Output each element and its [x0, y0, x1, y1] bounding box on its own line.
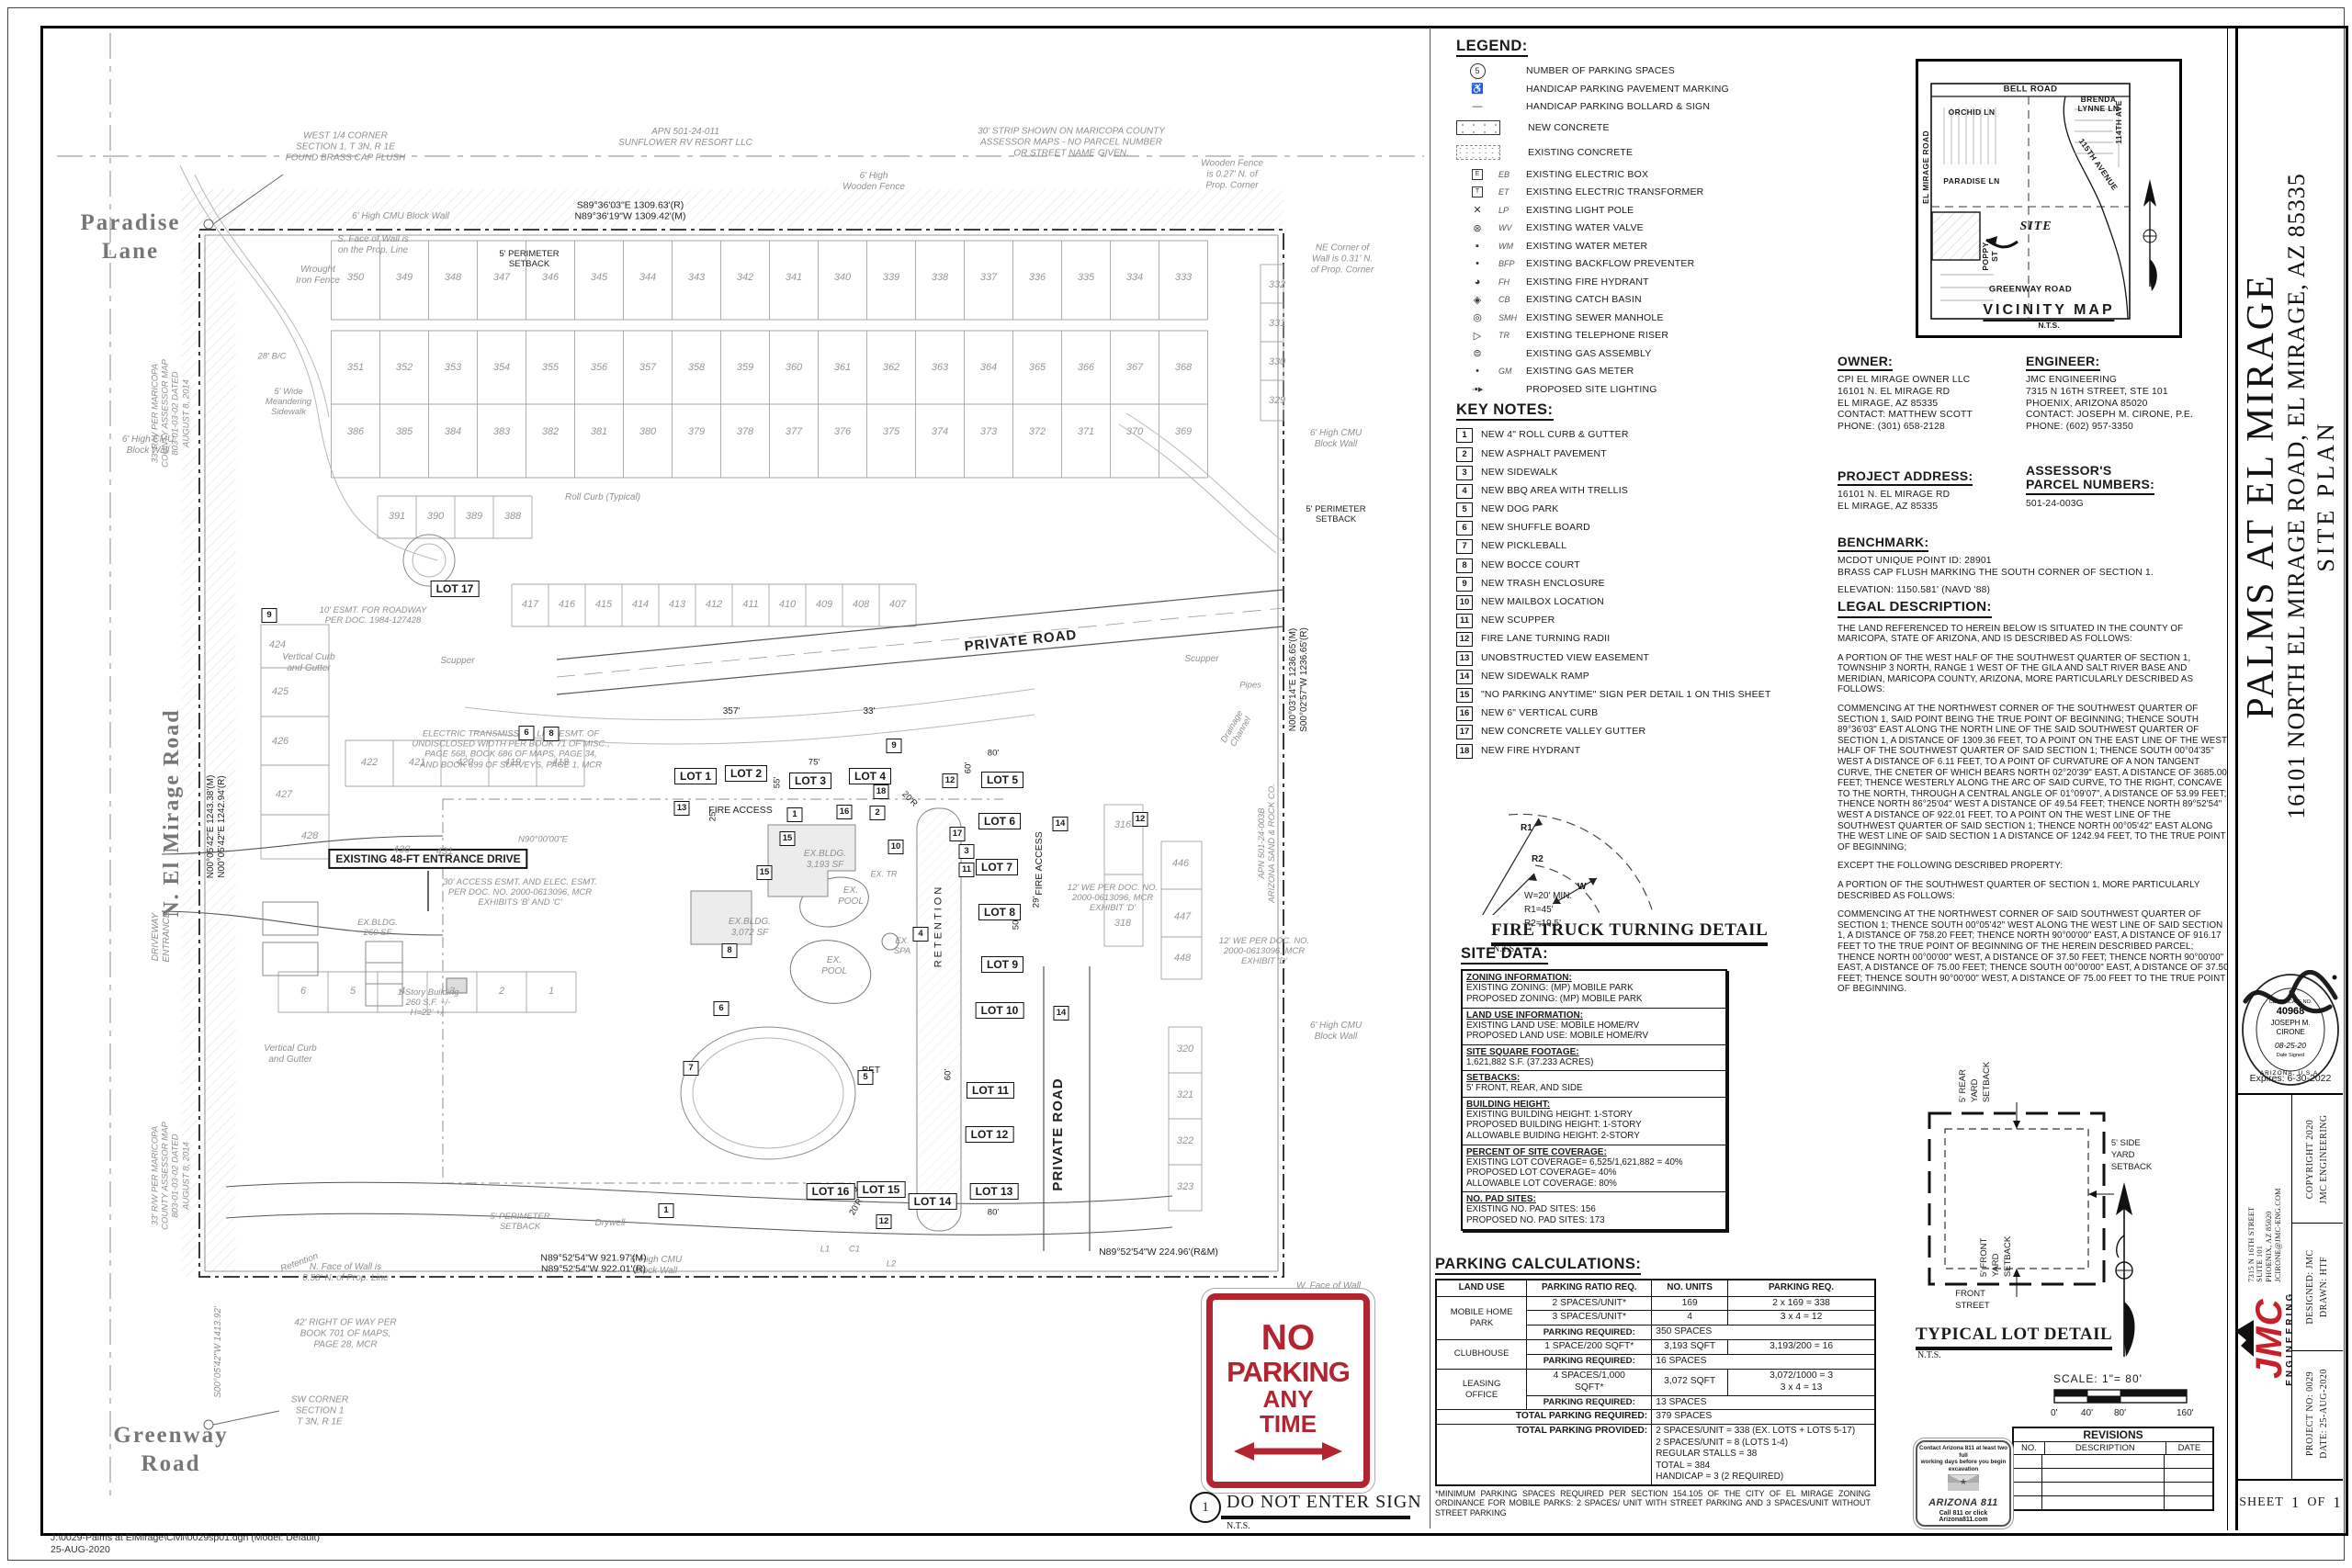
keynote-marker: 9	[887, 739, 902, 753]
legend-item: •BFPEXISTING BACKFLOW PREVENTER	[1456, 254, 1837, 273]
land-use-leasing: LEASING OFFICE	[1436, 1369, 1527, 1410]
site-data-line: PROPOSED BUILDING HEIGHT: 1-STORY	[1466, 1120, 1722, 1131]
plan-annotation: 5' PERIMETER SETBACK	[1306, 504, 1365, 525]
plan-annotation: Roll Curb (Typical)	[565, 492, 640, 503]
plan-annotation: 55'	[772, 777, 782, 788]
table-row	[2014, 1483, 2212, 1496]
lot-number: 346	[542, 272, 559, 283]
sheet-total: 1	[2333, 1494, 2342, 1512]
keynote-marker: 6	[519, 726, 535, 740]
water-valve-icon: ⊛	[1456, 222, 1498, 234]
legend-title: LEGEND:	[1456, 39, 1528, 57]
plan-annotation: 20'R	[899, 789, 920, 809]
gas-meter-icon: •	[1456, 366, 1498, 377]
lot-number: 410	[779, 599, 796, 610]
lot-number: 421	[409, 757, 425, 768]
legend-item: NEW CONCRETE	[1456, 116, 1837, 141]
site-data-section: SETBACKS:5' FRONT, REAR, AND SIDE	[1463, 1070, 1725, 1097]
keynote-text: "NO PARKING ANYTIME" SIGN PER DETAIL 1 O…	[1481, 688, 1771, 700]
lot-box-label: LOT 12	[966, 1126, 1014, 1143]
legend-symbol-label: WV	[1498, 223, 1526, 232]
turning-r2-label: R2	[1532, 852, 1543, 866]
revisions-table: REVISIONS NO. DESCRIPTION DATE	[2012, 1427, 2214, 1511]
drawn-by: DRAWN: HTF	[2317, 1256, 2331, 1316]
lot-number: 447	[1174, 911, 1191, 922]
lot-box-label: LOT 6	[978, 813, 1021, 829]
list-item: PHOENIX, ARIZONA 85020	[2026, 399, 2230, 411]
site-data-line: ALLOWABLE BUIDING HEIGHT: 2-STORY	[1466, 1131, 1722, 1142]
keynote-marker: 13	[674, 801, 690, 816]
lot-number: 425	[272, 686, 288, 697]
col-req: PARKING REQ.	[1728, 1280, 1875, 1296]
keynote-number: 1	[1456, 428, 1473, 443]
vicinity-bell-road: BELL ROAD	[2004, 85, 2058, 95]
keynote-text: NEW SIDEWALK	[1481, 466, 1558, 478]
parking-header-row: LAND USE PARKING RATIO REQ. NO. UNITS PA…	[1436, 1280, 1875, 1296]
owner-title: OWNER:	[1837, 355, 1893, 371]
legend-item: 5NUMBER OF PARKING SPACES	[1456, 62, 1837, 80]
benchmark-lines: MCDOT UNIQUE POINT ID: 28901BRASS CAP FL…	[1837, 556, 2231, 596]
keynote-marker: 18	[874, 784, 889, 799]
site-data-section: SITE SQUARE FOOTAGE:1,621,882 S.F. (37.2…	[1463, 1044, 1725, 1071]
scale-bar-block: SCALE: 1"= 80' 0' 40' 80' 160'	[2053, 1372, 2200, 1421]
plan-annotation: 6' High CMU Block Wall	[1310, 428, 1362, 450]
land-use-mobile: MOBILE HOME PARK	[1436, 1296, 1527, 1340]
typical-lot-title: TYPICAL LOT DETAIL	[1916, 1325, 2112, 1350]
lot-number: 407	[889, 599, 906, 610]
keynote-text: NEW PICKLEBALL	[1481, 539, 1566, 551]
lot-number: 355	[542, 362, 559, 373]
electric-box-icon: E	[1456, 169, 1498, 180]
plan-annotation: 6' High Wooden Fence	[842, 171, 905, 193]
typical-lot-nts: N.T.S.	[1917, 1350, 1941, 1360]
turning-detail-title: FIRE TRUCK TURNING DETAIL	[1491, 920, 1768, 946]
revisions-title: REVISIONS	[2014, 1428, 2212, 1442]
electric-transformer-icon: T	[1472, 186, 1483, 197]
site-data-line: 1,621,882 S.F. (37.233 ACRES)	[1466, 1057, 1722, 1068]
lot-number: 344	[639, 272, 656, 283]
keynote-text: NEW SHUFFLE BOARD	[1481, 521, 1590, 533]
az811-logo: ARIZONA 811	[1917, 1497, 2009, 1508]
keynote-number: 17	[1456, 725, 1473, 739]
stamp-expiration: Expires: 6-30-2022	[2238, 1073, 2343, 1084]
plan-annotation: N00°05'42"E 1243.38'(M) N00°05'42"E 1242…	[206, 775, 228, 879]
lot-box-label: LOT 4	[849, 768, 891, 784]
engineer-lines: JMC ENGINEERING7315 N 16TH STREET, STE 1…	[2026, 375, 2230, 433]
col-units: NO. UNITS	[1652, 1280, 1728, 1296]
az811-line2: working days before you begin excavation	[1917, 1459, 2009, 1472]
keynote-marker: 5	[858, 1070, 874, 1085]
lot-number: 413	[669, 599, 685, 610]
detail-number-bubble: 1	[1190, 1492, 1221, 1523]
plan-annotation: Wooden Fence is 0.27' N. of Prop. Corner	[1201, 158, 1263, 190]
plan-annotation: 357'	[723, 706, 741, 717]
lot-number: 335	[1078, 272, 1094, 283]
plan-annotation: Vertical Curb and Gutter	[282, 652, 334, 674]
backflow-preventer-icon: •	[1456, 258, 1498, 269]
list-item: PHONE: (301) 658-2128	[1837, 422, 2026, 434]
keynote-item: 7NEW PICKLEBALL	[1456, 539, 1837, 554]
total-provided-lines: 2 SPACES/UNIT = 338 (EX. LOTS + LOTS 5-1…	[1652, 1425, 1875, 1485]
keynote-item: 17NEW CONCRETE VALLEY GUTTER	[1456, 725, 1837, 739]
front-setback-label: 5' FRONT YARD SETBACK	[1979, 1236, 2014, 1277]
file-path-footer: J:\0029-Palms at ElMirage\Civil\0029sp01…	[51, 1532, 320, 1556]
lot-box-label: LOT 9	[981, 956, 1023, 973]
keynote-text: UNOBSTRUCTED VIEW EASEMENT	[1481, 651, 1649, 663]
sign-any: ANY	[1263, 1387, 1314, 1412]
rear-setback-label: 5' REAR YARD SETBACK	[1958, 1062, 1993, 1102]
leasing-ratio: 4 SPACES/1,000 SQFT*	[1527, 1369, 1652, 1395]
lot-number: 3	[449, 986, 455, 997]
mobile-req-2: 3 x 4 = 12	[1728, 1311, 1875, 1325]
legal-paragraph: COMMENCING AT THE NORTHWEST CORNER OF TH…	[1837, 704, 2231, 852]
plan-annotation: Pipes	[1239, 680, 1261, 690]
scale-tick-80: 80'	[2114, 1408, 2126, 1418]
lot-number: 390	[427, 511, 444, 522]
lot-number: 367	[1126, 362, 1143, 373]
project-title: PALMS AT EL MIRAGE	[2240, 273, 2282, 718]
fire-hydrant-icon: ◕	[1456, 276, 1498, 288]
legend-item-label: EXISTING SEWER MANHOLE	[1526, 312, 1664, 323]
project-address-title-line: 16101 NORTH EL MIRAGE ROAD, EL MIRAGE, A…	[2282, 173, 2312, 819]
plan-annotation: N89°52'54"W 921.97'(M) N89°52'54"W 922.0…	[540, 1253, 646, 1276]
lot-number: 428	[301, 830, 318, 841]
lot-number: 382	[542, 426, 559, 437]
lot-number: 377	[786, 426, 802, 437]
list-item: ELEVATION: 1150.581' (NAVD '88)	[1837, 585, 2231, 597]
keynote-marker: 17	[950, 827, 966, 841]
apn-title: ASSESSOR'S PARCEL NUMBERS:	[2026, 464, 2154, 495]
lot-number: 5	[350, 986, 356, 997]
legend-item: ◕FHEXISTING FIRE HYDRANT	[1456, 273, 1837, 291]
owner-lines: CPI EL MIRAGE OWNER LLC16101 N. EL MIRAG…	[1837, 375, 2026, 433]
az811-call: Call 811 or click Arizona811.com	[1917, 1510, 2009, 1523]
legend-symbol-label: SMH	[1498, 313, 1526, 322]
lot-number: 389	[466, 511, 482, 522]
parking-table: LAND USE PARKING RATIO REQ. NO. UNITS PA…	[1435, 1279, 1876, 1485]
legend-item: ◎SMHEXISTING SEWER MANHOLE	[1456, 309, 1837, 327]
plan-annotation: APN 501-24-011 SUNFLOWER RV RESORT LLC	[618, 127, 752, 149]
plan-annotation: Greenway Road	[113, 1421, 228, 1479]
lot-number: 378	[737, 426, 753, 437]
table-row: TOTAL PARKING PROVIDED: 2 SPACES/UNIT = …	[1436, 1425, 1875, 1485]
keynote-marker: 15	[780, 831, 796, 846]
legend-symbol-label: WM	[1498, 242, 1526, 251]
sign-no: NO	[1261, 1320, 1316, 1357]
lot-number: 343	[688, 272, 705, 283]
mobile-units-2: 4	[1652, 1311, 1728, 1325]
plan-annotation: 28' B/C	[258, 351, 287, 361]
legend-item: ⊜EXISTING GAS ASSEMBLY	[1456, 344, 1837, 363]
lot-box-label: LOT 13	[970, 1183, 1019, 1200]
plan-annotation: Drywell	[595, 1218, 626, 1229]
table-row: TOTAL PARKING REQUIRED: 379 SPACES	[1436, 1410, 1875, 1425]
lot-number: 1	[548, 986, 554, 997]
keynote-number: 15	[1456, 688, 1473, 703]
keynote-number: 8	[1456, 558, 1473, 573]
legend-item-label: HANDICAP PARKING PAVEMENT MARKING	[1526, 84, 1729, 95]
revisions-col-no: NO.	[2014, 1442, 2045, 1454]
do-not-enter-sign-detail: NO PARKING ANY TIME 1 DO NOT ENTER SIGN …	[1190, 1288, 1419, 1532]
handicap-bollard-icon: —	[1456, 101, 1498, 112]
lot-number: 351	[347, 362, 364, 373]
stamp-graphic: CERTIFICATE NO. 40968 JOSEPH M. CIRONE 0…	[2238, 970, 2343, 1089]
double-arrow-icon	[1234, 1440, 1342, 1462]
legal-paragraph: A PORTION OF THE SOUTHWEST QUARTER OF SE…	[1837, 880, 2231, 901]
list-item: 16101 N. EL MIRAGE RD	[1837, 387, 2026, 399]
plan-annotation: 33' R/W PER MARICOPA COUNTY ASSESSOR MAP…	[151, 1122, 192, 1230]
plan-annotation: 12' WE PER DOC. NO. 2000-0613096, MCR EX…	[1068, 883, 1158, 914]
lot-number: 338	[932, 272, 948, 283]
plan-annotation: 75'	[808, 757, 820, 767]
keynote-number: 11	[1456, 614, 1473, 628]
copyright-line1: COPYRIGHT 2020	[2303, 1119, 2317, 1199]
mobile-units-1: 169	[1652, 1296, 1728, 1311]
copyright-line2: JMC ENGINEERING	[2317, 1114, 2331, 1203]
revisions-col-description: DESCRIPTION	[2045, 1442, 2166, 1454]
clubhouse-req: 3,193/200 = 16	[1728, 1340, 1875, 1355]
vicinity-paradise-ln: PARADISE LN	[1943, 176, 1999, 186]
lot-number: 375	[883, 426, 899, 437]
plan-annotation: N00°03'14"E 1236.65'(M) S00°02'57"W 1236…	[1288, 627, 1310, 732]
total-provided-label: TOTAL PARKING PROVIDED:	[1436, 1425, 1652, 1485]
site-data-line: EXISTING LOT COVERAGE= 6,525/1,621,882 =…	[1466, 1157, 1722, 1168]
sewer-manhole-icon: ◎	[1456, 311, 1498, 323]
plan-annotation: APN 501-24-003B ARIZONA SAND & ROCK CO.	[1257, 784, 1277, 903]
lot-number: 374	[932, 426, 948, 437]
keynotes-title: KEY NOTES:	[1456, 402, 1554, 421]
keynote-item: 3NEW SIDEWALK	[1456, 466, 1837, 480]
plan-annotation: 5' PERIMETER SETBACK	[499, 249, 559, 269]
vicinity-poppy-st: POPPY ST	[1981, 242, 1999, 270]
keynote-text: NEW SCUPPER	[1481, 614, 1555, 626]
site-data-section: ZONING INFORMATION:EXISTING ZONING: (MP)…	[1463, 971, 1725, 1007]
lot-number: 6	[300, 986, 306, 997]
site-data-section: NO. PAD SITES:EXISTING NO. PAD SITES: 15…	[1463, 1191, 1725, 1228]
keynote-number: 14	[1456, 670, 1473, 684]
lot-number: 420	[457, 757, 473, 768]
lot-number: 373	[980, 426, 997, 437]
keynote-marker: 1	[659, 1203, 674, 1218]
leasing-req-label: PARKING REQUIRED:	[1527, 1395, 1652, 1410]
lot-number: 416	[559, 599, 575, 610]
project-address-block: PROJECT ADDRESS: 16101 N. EL MIRAGE RDEL…	[1837, 468, 2026, 513]
plan-annotation: WEST 1/4 CORNER SECTION 1, T 3N, R 1E FO…	[286, 130, 406, 163]
title-underline	[1221, 1516, 1410, 1519]
legend-item: ⊛WVEXISTING WATER VALVE	[1456, 219, 1837, 237]
keynote-number: 12	[1456, 632, 1473, 647]
list-item: 2 SPACES/UNIT = 338 (EX. LOTS + LOTS 5-1…	[1656, 1426, 1871, 1438]
lot-number: 391	[389, 511, 405, 522]
legend-item-label: EXISTING WATER VALVE	[1526, 222, 1644, 233]
legend-item: —HANDICAP PARKING BOLLARD & SIGN	[1456, 97, 1837, 116]
keynote-item: 9NEW TRASH ENCLOSURE	[1456, 577, 1837, 592]
plan-annotation: 6' High CMU Block Wall	[352, 211, 449, 222]
list-item: HANDICAP = 3 (2 REQUIRED)	[1656, 1472, 1871, 1483]
az811-line1: Contact Arizona 811 at least two full	[1917, 1445, 2009, 1459]
legend-items: 5NUMBER OF PARKING SPACES♿HANDICAP PARKI…	[1456, 62, 1837, 398]
plan-annotation: 5' PERIMETER SETBACK	[490, 1212, 549, 1232]
lot-number: 4	[400, 986, 405, 997]
leasing-req-value: 13 SPACES	[1652, 1395, 1875, 1410]
plan-annotation: 33' R/W PER MARICOPA COUNTY ASSESSOR MAP…	[151, 359, 192, 468]
keynote-item: 10NEW MAILBOX LOCATION	[1456, 595, 1837, 610]
mobile-ratio-1: 2 SPACES/UNIT*	[1527, 1296, 1652, 1311]
list-item: PHONE: (602) 957-3350	[2026, 422, 2230, 434]
lot-box-label: LOT 7	[976, 859, 1018, 875]
jmc-logo: JMC ENGINEERING 7315 N 16TH STREET SUITE…	[2235, 1188, 2295, 1386]
keynote-text: NEW ASPHALT PAVEMENT	[1481, 447, 1607, 459]
water-meter-icon: ▪	[1456, 241, 1498, 252]
plan-annotation: L1	[820, 1244, 831, 1254]
leasing-req: 3,072/1000 = 3 3 x 4 = 13	[1728, 1369, 1875, 1395]
lot-number: 372	[1029, 426, 1046, 437]
legend-item: EEBEXISTING ELECTRIC BOX	[1456, 165, 1837, 184]
lot-box-label: LOT 17	[431, 581, 480, 597]
lot-box-label: LOT 1	[674, 768, 717, 784]
total-required-value: 379 SPACES	[1652, 1410, 1875, 1425]
lot-box-label: LOT 14	[909, 1193, 957, 1210]
lot-number: 345	[591, 272, 607, 283]
project-number: PROJECT NO: 0029	[2303, 1371, 2317, 1455]
keynote-marker: 12	[943, 773, 958, 788]
legend-item-label: EXISTING GAS ASSEMBLY	[1526, 348, 1651, 359]
plan-annotation: 20'R	[847, 1197, 865, 1217]
legend-item-label: EXISTING GAS METER	[1526, 366, 1634, 377]
legend-item: ◈CBEXISTING CATCH BASIN	[1456, 290, 1837, 309]
legend-item-label: EXISTING CATCH BASIN	[1526, 294, 1642, 305]
legend-item-label: EXISTING WATER METER	[1526, 241, 1647, 252]
plan-annotation: 60'	[963, 762, 973, 773]
keynote-marker: 10	[888, 840, 904, 854]
lot-number: 386	[347, 426, 364, 437]
keynote-text: NEW DOG PARK	[1481, 502, 1558, 514]
parking-calculations-panel: PARKING CALCULATIONS: LAND USE PARKING R…	[1435, 1257, 1876, 1517]
sign-parking: PARKING	[1227, 1357, 1350, 1387]
plan-annotation: NE Corner of Wall is 0.31' N. of Prop. C…	[1311, 243, 1374, 275]
keynote-marker: 16	[837, 805, 853, 819]
site-data-section: LAND USE INFORMATION:EXISTING LAND USE: …	[1463, 1008, 1725, 1044]
lot-number: 369	[1175, 426, 1192, 437]
list-item: REGULAR STALLS = 38	[1656, 1449, 1871, 1461]
keynote-marker: 9	[262, 608, 277, 623]
legend-symbol-label: LP	[1498, 206, 1526, 215]
firm-logo-cell: JMC ENGINEERING 7315 N 16TH STREET SUITE…	[2238, 1095, 2292, 1479]
legend-item: ✕LPEXISTING LIGHT POLE	[1456, 201, 1837, 220]
legal-description-block: LEGAL DESCRIPTION: THE LAND REFERENCED T…	[1837, 599, 2231, 1003]
keynote-number: 6	[1456, 521, 1473, 536]
plan-annotation: 25'	[707, 810, 718, 821]
keynote-text: NEW 6" VERTICAL CURB	[1481, 706, 1598, 718]
keynote-marker: 4	[913, 927, 929, 942]
parking-footnote: *MINIMUM PARKING SPACES REQUIRED PER SEC…	[1435, 1489, 1871, 1518]
legend-item-label: NUMBER OF PARKING SPACES	[1526, 65, 1675, 76]
site-data-line: PROPOSED ZONING: (MP) MOBILE PARK	[1466, 994, 1722, 1005]
plan-annotation: 6' High CMU Block Wall	[1310, 1021, 1362, 1043]
keynote-number: 5	[1456, 502, 1473, 517]
keynote-number: 13	[1456, 651, 1473, 666]
lot-number: 385	[396, 426, 413, 437]
legend-symbol-label: EB	[1498, 170, 1526, 179]
keynote-item: 15"NO PARKING ANYTIME" SIGN PER DETAIL 1…	[1456, 688, 1837, 703]
keynote-item: 11NEW SCUPPER	[1456, 614, 1837, 628]
keynote-text: NEW BOCCE COURT	[1481, 558, 1580, 570]
legal-paragraph: THE LAND REFERENCED TO HEREIN BELOW IS S…	[1837, 624, 2231, 645]
lot-number: 414	[632, 599, 649, 610]
site-data-section: BUILDING HEIGHT:EXISTING BUILDING HEIGHT…	[1463, 1097, 1725, 1145]
lot-number: 431	[436, 846, 453, 857]
lot-number: 353	[445, 362, 461, 373]
lot-number: 361	[834, 362, 851, 373]
legend-symbol-label: ET	[1498, 187, 1526, 197]
keynote-number: 4	[1456, 484, 1473, 499]
vicinity-map-title: VICINITY MAP	[1983, 302, 2114, 321]
lot-number: 362	[883, 362, 899, 373]
stamp-date-signed: 08-25-20	[2275, 1041, 2306, 1050]
lot-number: 2	[499, 986, 504, 997]
lot-number: 347	[493, 272, 510, 283]
legend-item: ♿HANDICAP PARKING PAVEMENT MARKING	[1456, 80, 1837, 98]
lot-box-label: LOT 3	[789, 773, 831, 789]
plan-annotation: S00°05'42"W 1413.92'	[213, 1306, 224, 1398]
table-row	[2014, 1469, 2212, 1483]
catch-basin-icon: ◈	[1456, 294, 1498, 306]
list-item: CONTACT: JOSEPH M. CIRONE, P.E.	[2026, 410, 2230, 422]
legend-item: •GMEXISTING GAS METER	[1456, 362, 1837, 380]
vicinity-el-mirage-road: EL MIRAGE ROAD	[1921, 130, 1930, 204]
plan-annotation: SW CORNER SECTION 1 T 3N, R 1E	[291, 1394, 348, 1427]
file-path: J:\0029-Palms at ElMirage\Civil\0029sp01…	[51, 1532, 320, 1543]
legend-item-label: NEW CONCRETE	[1528, 122, 1610, 133]
site-data-line: EXISTING NO. PAD SITES: 156	[1466, 1204, 1722, 1215]
site-data-line: ALLOWABLE LOT COVERAGE: 80%	[1466, 1179, 1722, 1190]
plan-annotation: 80'	[988, 748, 999, 758]
mobile-req-1: 2 x 169 = 338	[1728, 1296, 1875, 1311]
lot-number: 357	[639, 362, 656, 373]
lot-number: 339	[883, 272, 899, 283]
vicinity-brenda-lynne-ln: BRENDA LYNNE LN	[2078, 95, 2120, 113]
lot-number: 381	[591, 426, 607, 437]
legal-paragraphs: THE LAND REFERENCED TO HEREIN BELOW IS S…	[1837, 624, 2231, 995]
mobile-req-label: PARKING REQUIRED:	[1527, 1325, 1652, 1340]
vicinity-orchid-ln: ORCHID LN	[1949, 107, 1996, 117]
apn-lines: 501-24-003G	[2026, 499, 2230, 511]
plan-annotation: 33'	[863, 706, 875, 717]
fire-truck-turning-detail: R1 R2 W W=20' MIN. R1=45' R2=19.5' FIRE …	[1465, 805, 1833, 956]
lot-number: 329	[1269, 395, 1285, 406]
lot-number: 348	[445, 272, 461, 283]
keynote-item: 4NEW BBQ AREA WITH TRELLIS	[1456, 484, 1837, 499]
clubhouse-ratio: 1 SPACE/200 SQFT*	[1527, 1340, 1652, 1355]
site-data-heading: LAND USE INFORMATION:	[1466, 1010, 1722, 1021]
lot-number: 320	[1177, 1043, 1193, 1055]
new-concrete-swatch	[1456, 120, 1500, 135]
keynote-number: 3	[1456, 466, 1473, 480]
list-item: MCDOT UNIQUE POINT ID: 28901	[1837, 556, 2231, 568]
site-data-heading: ZONING INFORMATION:	[1466, 973, 1722, 983]
lot-number: 370	[1126, 426, 1143, 437]
legend-item-label: PROPOSED SITE LIGHTING	[1526, 384, 1657, 395]
keynote-marker: 7	[684, 1061, 699, 1076]
owner-block: OWNER: CPI EL MIRAGE OWNER LLC16101 N. E…	[1837, 354, 2026, 433]
keynote-marker: 8	[722, 943, 738, 958]
engineer-title: ENGINEER:	[2026, 355, 2100, 371]
site-data-box: ZONING INFORMATION:EXISTING ZONING: (MP)…	[1461, 969, 1727, 1230]
lot-number: 417	[522, 599, 538, 610]
lot-number: 340	[834, 272, 851, 283]
site-data-section: PERCENT OF SITE COVERAGE:EXISTING LOT CO…	[1463, 1145, 1725, 1192]
engineer-block: ENGINEER: JMC ENGINEERING7315 N 16TH STR…	[2026, 354, 2230, 433]
